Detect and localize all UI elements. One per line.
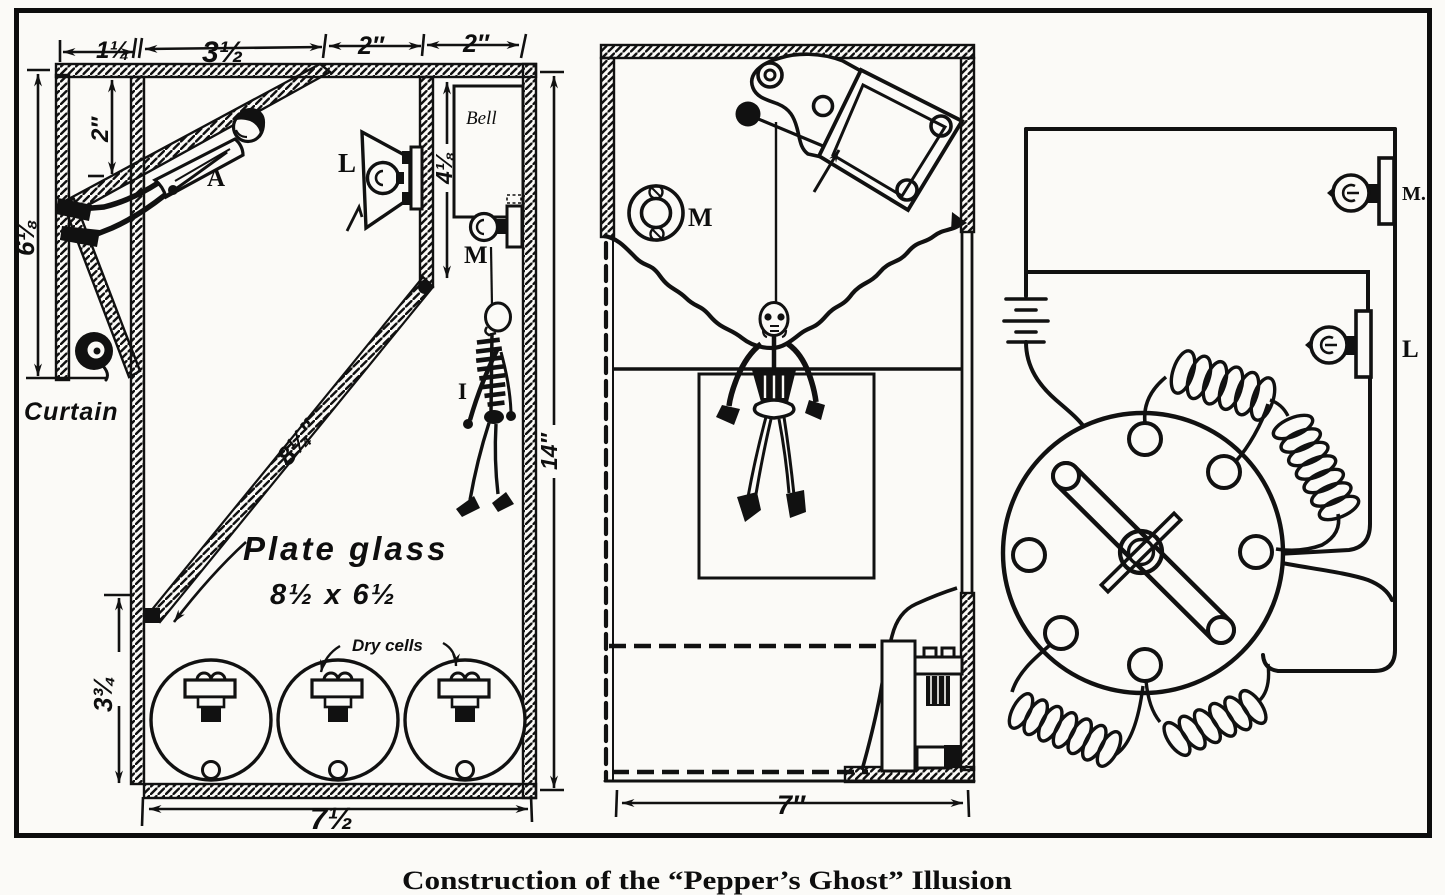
svg-text:I: I bbox=[458, 379, 467, 404]
svg-text:14″: 14″ bbox=[536, 432, 562, 470]
svg-text:2″: 2″ bbox=[87, 116, 114, 143]
svg-text:8½ x 6½: 8½ x 6½ bbox=[270, 579, 397, 611]
svg-text:7½: 7½ bbox=[310, 801, 353, 836]
svg-text:1¼: 1¼ bbox=[96, 37, 129, 64]
svg-text:Plate glass: Plate glass bbox=[243, 530, 448, 567]
svg-text:M.: M. bbox=[1402, 183, 1426, 205]
svg-text:4⅛: 4⅛ bbox=[431, 152, 457, 185]
svg-text:3½: 3½ bbox=[202, 36, 244, 69]
svg-text:2″: 2″ bbox=[462, 30, 490, 58]
svg-text:M: M bbox=[464, 242, 488, 269]
svg-text:6⅛: 6⅛ bbox=[10, 220, 40, 256]
svg-text:Bell: Bell bbox=[466, 108, 497, 129]
svg-text:M: M bbox=[688, 203, 713, 232]
svg-text:3¾: 3¾ bbox=[88, 676, 118, 712]
svg-text:L: L bbox=[338, 148, 356, 178]
svg-text:Curtain: Curtain bbox=[24, 398, 119, 426]
svg-text:2″: 2″ bbox=[357, 32, 385, 60]
svg-text:7″: 7″ bbox=[777, 790, 806, 820]
svg-text:Construction of the “Pepper’s: Construction of the “Pepper’s Ghost” Ill… bbox=[402, 866, 1013, 895]
svg-text:Dry cells: Dry cells bbox=[352, 636, 423, 655]
svg-text:A: A bbox=[207, 165, 225, 192]
svg-text:L: L bbox=[1402, 336, 1419, 363]
